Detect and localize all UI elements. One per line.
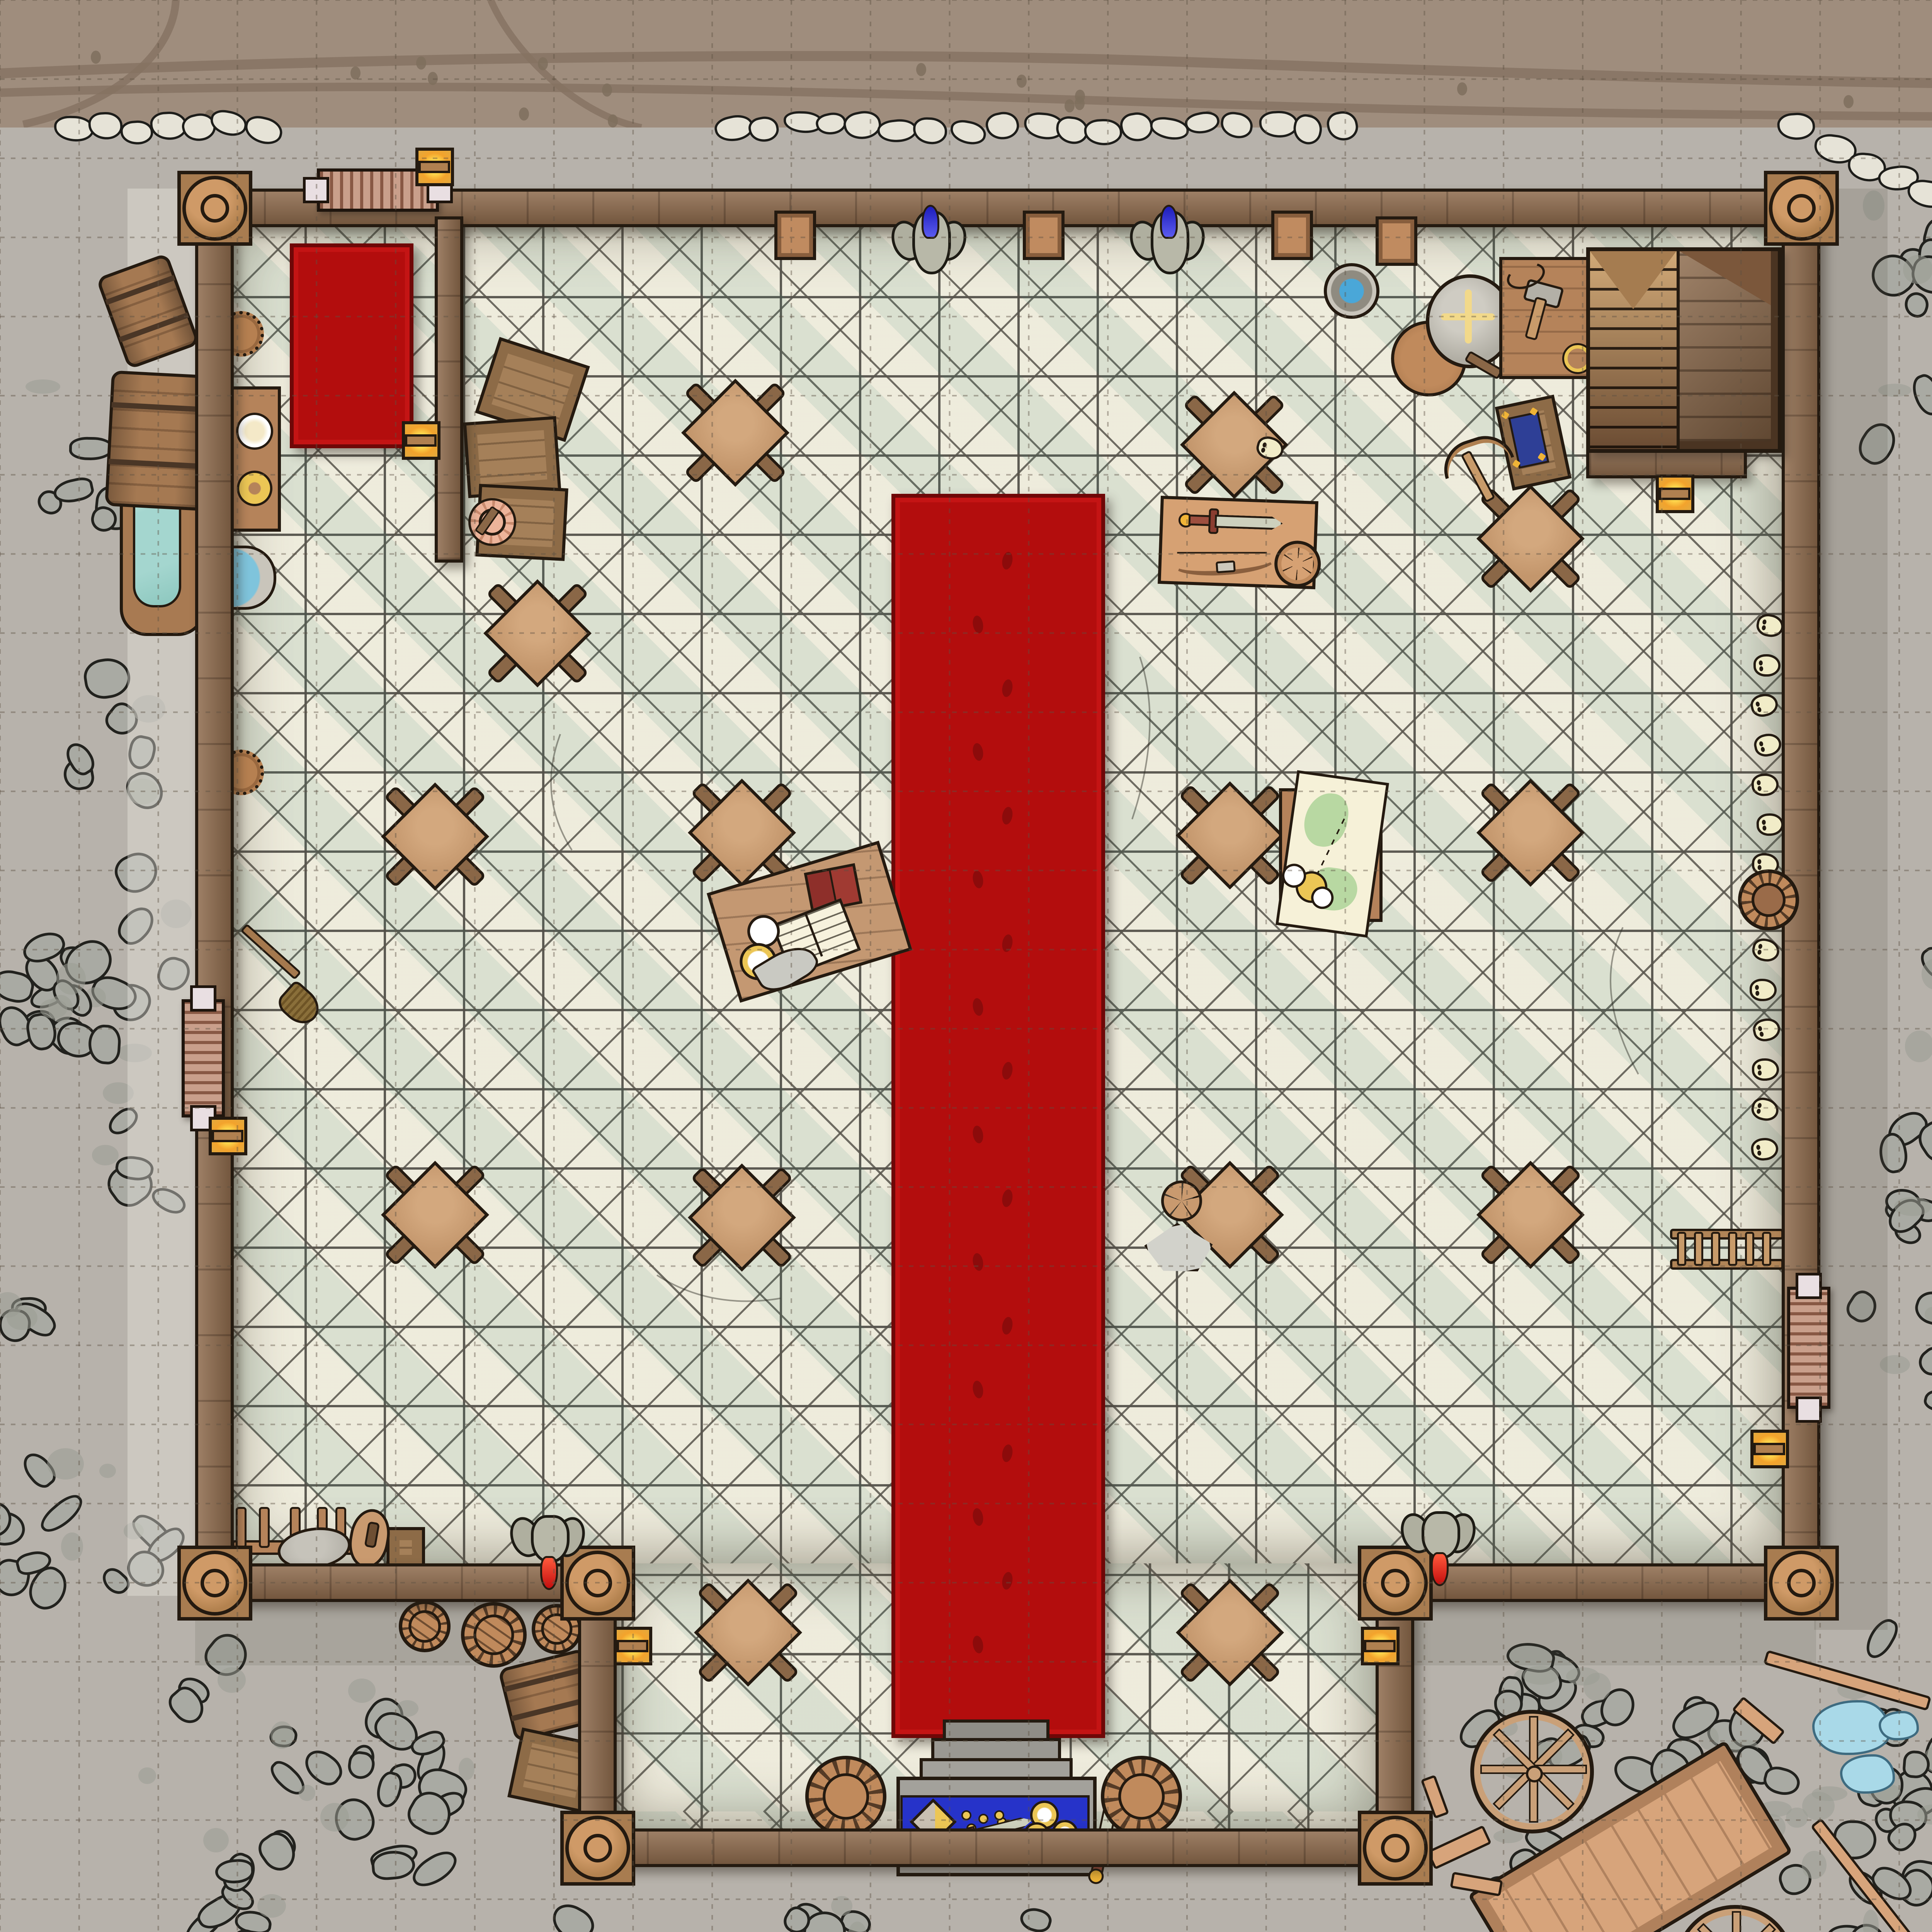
wall-west [195,189,234,1602]
door-east [1787,1287,1830,1409]
rubble-stone [154,953,193,995]
table-x [680,1156,804,1279]
rubble-stone [112,901,161,950]
pebble-shadow [26,379,60,394]
rubble-stone [36,1489,88,1538]
blue-flame [922,205,939,239]
torch-handle [1659,488,1690,500]
pebble-shadow [1894,1197,1931,1216]
food-table [228,386,281,532]
footprint [1001,1571,1014,1590]
display-sword [1178,510,1279,529]
ladder-rung [1711,1232,1720,1266]
pebble-shadow [40,999,68,1019]
rubble-stone [1922,1386,1932,1415]
pebble-shadow [1878,384,1911,397]
pebble-shadow [92,1145,119,1166]
barrel-band [111,402,209,412]
pebble-shadow [1880,1355,1910,1374]
pillar-cap-ring [1787,1569,1816,1597]
footprint [971,870,985,889]
pebble-shadow [117,1044,152,1062]
table-x [373,1153,497,1277]
pebble-shadow [831,1896,852,1916]
pebble-shadow [47,1448,84,1480]
bow-grip [1216,560,1236,573]
rock-ledge-stone [1183,109,1221,137]
carpet-runner-main [891,494,1105,1738]
door-west [182,999,225,1117]
wheel-spoke [1732,1911,1741,1932]
pebble-shadow [138,1767,156,1784]
pedestal-top [1118,1773,1165,1820]
blue-bowl [1324,263,1379,319]
bow-string [1177,552,1267,553]
footprint [1001,1444,1014,1463]
table-x [476,571,599,695]
pebble-shadow [103,1082,134,1104]
wheel-hub [1526,1765,1543,1782]
pebble-shadow [1863,1910,1879,1932]
rock-ledge-stone [983,109,1021,143]
shield-center [1752,883,1786,917]
footprint [971,1380,985,1399]
gold-coin [961,1810,971,1820]
pebble-shadow [320,1803,349,1832]
pebble-shadow [270,1721,294,1748]
footprint [971,997,985,1017]
rubble-stone [126,733,158,772]
pebble-shadow [218,1667,246,1693]
footprint [971,742,985,762]
ladder-rung [1745,1232,1754,1266]
wall-shield [1738,869,1799,930]
wheel-slot [364,1521,380,1548]
torch-annex-east [1361,1627,1400,1665]
pedestal [805,1756,886,1837]
wall-post [774,211,816,260]
broom-bristles [274,979,326,1031]
folded-paper [1141,1216,1218,1281]
hammer-handle [1525,296,1548,341]
gargoyle-north-2 [1131,209,1204,298]
wall-shade-east [1814,189,1888,1630]
white-plate [236,413,273,450]
barrel-top-planks [473,1614,514,1655]
barrel-band [105,275,175,305]
pebble-shadow [348,1679,376,1702]
barrel-top-planks [408,1610,441,1643]
pillar-cap-ring [201,1569,229,1597]
pebble-shadow [1863,190,1884,221]
rock-ledge-stone [1148,115,1190,141]
torch-handle [617,1640,648,1652]
ladder-rung [1728,1232,1737,1266]
rubble-stone [148,1182,190,1219]
rock-ledge-stone [876,117,918,144]
battle-map-canvas [0,0,1932,1932]
table-x [1469,1153,1592,1277]
torch-north-outside [415,148,454,186]
pillar-round [1764,171,1839,246]
ladder [1670,1229,1779,1266]
barrel-band [109,459,206,469]
red-flame [1431,1552,1449,1586]
torch-stairs [1656,474,1694,513]
pedestal [1101,1756,1182,1837]
table-x [1469,771,1592,895]
rubble-stone [110,846,164,899]
small-wheel [1161,1180,1202,1221]
pillar-cap-ring [1381,1569,1410,1597]
rubble-stone [1861,1614,1902,1663]
rock-ledge-stone [88,111,123,141]
rock-ledge-stone [842,108,883,142]
ladder-rung [1694,1232,1703,1266]
rock-ledge-stone [120,119,154,146]
rubble-stone [1852,417,1903,470]
rock-ledge-stone [1083,118,1122,146]
torch-handle [212,1130,243,1142]
torch-handle [1364,1640,1396,1652]
gargoyle-north-1 [892,209,966,298]
rock-ledge-stone [912,117,947,145]
rock-ledge-stone [1118,110,1155,144]
rubble-stone [1914,1343,1932,1381]
rock-ledge-stone [1219,110,1255,140]
footprint [1001,679,1014,698]
torch-handle [1753,1443,1785,1455]
cart-wheel [1470,1710,1594,1833]
workbench [1499,257,1595,379]
wall-post [1023,211,1065,260]
table-x [686,1571,810,1694]
torch-handle [418,161,450,173]
rubble-stone [82,655,133,702]
blue-flame [1160,205,1178,239]
pebble-shadow [1812,1786,1847,1801]
pebble-shadow [396,1700,418,1717]
carpet-closet-room [290,243,413,448]
pillar-round [177,171,252,246]
door-post [1796,1273,1822,1299]
table-x [1172,383,1296,507]
puddle [1840,1754,1895,1794]
rubble-stone [104,1103,143,1140]
rubble-stone [546,1898,600,1932]
sword-blade [1214,515,1283,530]
pebble-shadow [132,695,166,723]
door-post [190,985,216,1012]
footprint [1001,1189,1014,1208]
rock-ledge-stone [747,114,781,145]
table-x [1168,774,1292,897]
shine [1441,313,1495,320]
pebble-shadow [299,1785,315,1801]
footprint [971,1252,985,1272]
ladder-rung [1677,1232,1686,1266]
rock-ledge-stone [54,116,94,142]
wall-shade-south [1376,1596,1816,1665]
pillar-cap-ring [1787,194,1816,223]
terracotta-plate [468,498,516,546]
rubble-stone [1901,289,1932,321]
rack-peg [236,1507,247,1548]
pebble-shadow [126,779,158,804]
pillar-cap-ring [583,1834,612,1862]
red-flame [540,1556,558,1590]
pebble-shadow [124,1522,144,1539]
torch-west-wall [209,1117,247,1155]
footprint [1001,934,1014,953]
wall-post [1271,211,1313,260]
pebble-shadow [1903,255,1932,284]
rock-ledge-stone [242,113,285,148]
gargoyle-annex-east [1401,1509,1475,1567]
rock-ledge-stone [208,108,249,139]
table-x [1168,1571,1292,1694]
pillar-round [560,1811,635,1886]
footprint [971,1125,985,1144]
pedestal-top [823,1773,869,1820]
rubble-stone [299,1744,348,1791]
pebble-shadow [1802,1851,1827,1879]
wheel-trinket [1274,540,1321,588]
rack-peg [259,1507,270,1548]
map-table [1279,788,1383,922]
skull-trophy [1750,979,1777,1001]
weapon-display-mat [1158,496,1318,589]
pillar-cap-ring [201,194,229,223]
pillar-round [1764,1546,1839,1621]
table-x [673,371,797,495]
rubble-stone [1017,1905,1054,1932]
footprint [971,615,985,634]
rubble-stone [1842,1286,1883,1327]
wall-annex-south [578,1828,1414,1867]
barrel-band [503,1666,588,1692]
pickaxe [1439,431,1528,500]
torch-closet [402,421,440,460]
footprint [1001,1316,1014,1335]
footprint [971,1635,985,1654]
broom [230,943,323,1028]
torch-east-wall [1750,1430,1789,1468]
torch-handle [405,434,437,447]
pebble-shadow [257,1894,286,1918]
footprint [971,1507,985,1527]
rubble-stone [1931,430,1932,479]
pebble-shadow [1905,1031,1932,1062]
torch-annex-west [614,1627,652,1665]
food-plate [237,471,272,506]
wheel-and-paper [1146,1180,1231,1281]
pillar-round [177,1546,252,1621]
pebble-shadow [161,900,192,929]
rock-ledge-stone [1325,109,1361,143]
door-post [303,177,329,203]
small-crate [386,1527,425,1568]
puddle [1879,1711,1919,1740]
pebble-shadow [1566,1667,1600,1686]
door-post [1796,1396,1822,1423]
barrel-band [119,313,189,342]
footprint [1001,806,1014,825]
barrel-top [461,1602,527,1668]
gargoyle-annex-west [511,1513,584,1571]
rock-ledge-stone [1777,112,1816,141]
ladder-rung [1762,1232,1771,1266]
table-x [373,775,497,898]
pillar-cap-ring [583,1569,612,1597]
pebble-shadow [61,1532,83,1561]
display-bow [1172,532,1271,578]
wall-post [1376,216,1417,266]
rock-ledge-stone [1259,110,1298,138]
pebble-shadow [1522,1666,1558,1685]
footprint [1001,1061,1014,1080]
pillar-cap-ring [1381,1834,1410,1862]
rubble-stone [253,1827,302,1877]
pebble-shadow [459,1758,474,1780]
rubble-stone [1908,371,1932,419]
rock-ledge-stone [949,118,988,147]
pillar-round [1358,1811,1433,1886]
barrel-top [399,1600,451,1652]
pebble-shadow [99,1464,116,1478]
wall-partition-closet [435,216,463,563]
footprint [1001,551,1014,570]
pebble-shadow [203,1828,228,1852]
staircase [1586,247,1782,453]
